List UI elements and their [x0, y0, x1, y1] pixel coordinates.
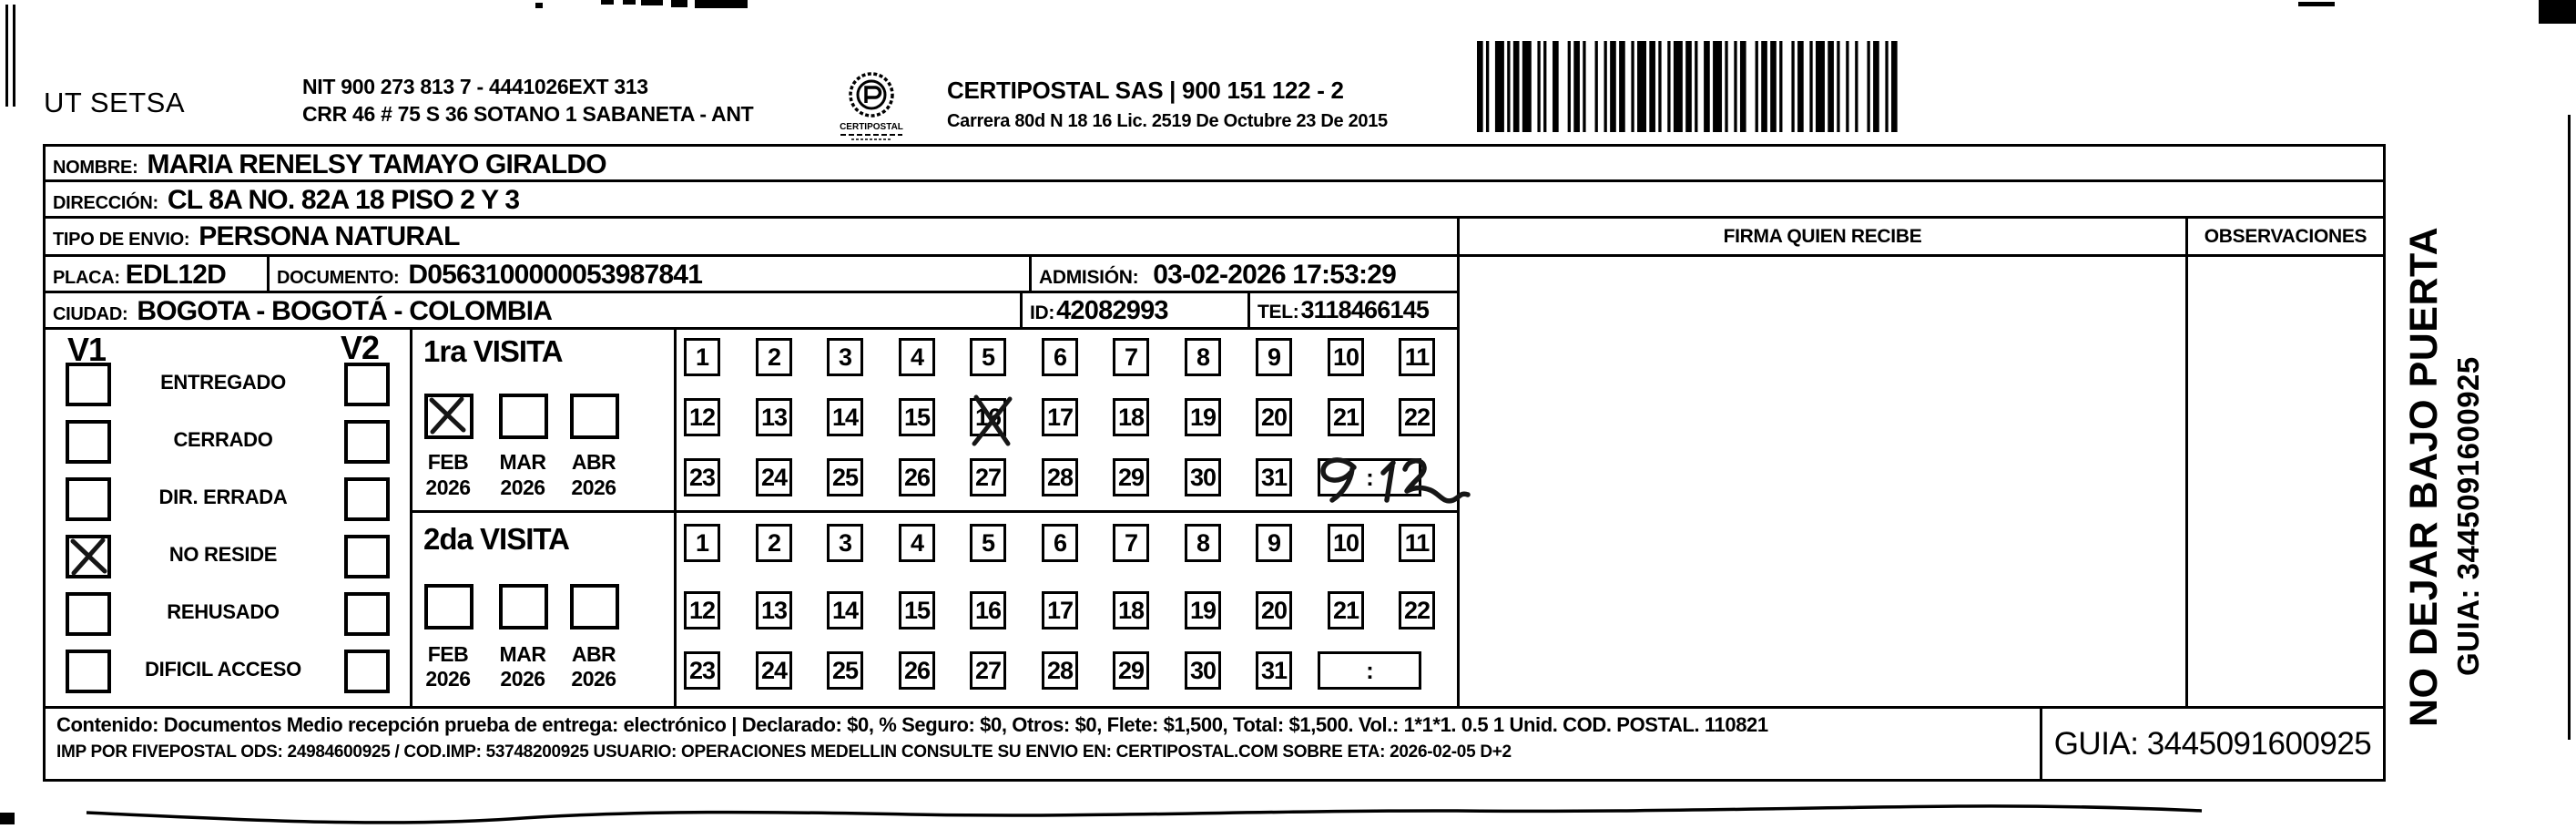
first-visit-day-24: 24 — [756, 458, 792, 496]
sender-nit: NIT 900 273 813 7 - 4441026EXT 313 — [302, 73, 753, 100]
second-visit-day-26: 26 — [899, 651, 935, 690]
second-visit-box: 2da VISITA FEB2026MAR2026ABR2026 — [410, 510, 677, 709]
scan-edge-mark — [5, 5, 8, 107]
first-visit-day-22: 22 — [1399, 398, 1435, 436]
second-visit-year-label: 2026 — [412, 667, 484, 691]
scan-top-mark — [623, 0, 636, 5]
side-note-guia: GUIA: 3445091600925 — [2448, 117, 2489, 727]
second-visit-day-17: 17 — [1042, 591, 1078, 629]
second-visit-month-label: FEB — [412, 642, 484, 667]
guia-box: GUIA: 3445091600925 — [2040, 706, 2386, 782]
footer-contenido-line: Contenido: Documentos Medio recepción pr… — [56, 713, 1768, 737]
id-cell: ID: 42082993 — [1020, 291, 1250, 330]
v1-checkbox-rehusado — [66, 592, 111, 636]
scan-bottom-wavy-line — [0, 798, 2576, 829]
tipo-envio-cell: TIPO DE ENVIO: PERSONA NATURAL — [43, 216, 1460, 257]
scan-right-edge — [2568, 115, 2571, 740]
provider-address: Carrera 80d N 18 16 Lic. 2519 De Octubre… — [947, 111, 1388, 132]
v1-checkbox-dir-errada — [66, 477, 111, 521]
status-label: DIR. ERRADA — [109, 486, 337, 509]
second-visit-time-box: : — [1318, 651, 1421, 690]
documento-label: DOCUMENTO: — [277, 268, 399, 289]
placa-cell: PLACA: EDL12D — [43, 254, 270, 293]
ciudad-label: CIUDAD: — [53, 304, 127, 325]
first-visit-day-13: 13 — [756, 398, 792, 436]
second-visit-calendar: 1234567891011121314151617181920212223242… — [674, 510, 1460, 709]
second-visit-day-6: 6 — [1042, 524, 1078, 562]
direccion-value: CL 8A NO. 82A 18 PISO 2 Y 3 — [168, 185, 519, 216]
firma-header: FIRMA QUIEN RECIBE — [1457, 216, 2188, 257]
second-visit-day-24: 24 — [756, 651, 792, 690]
ciudad-cell: CIUDAD: BOGOTA - BOGOTÁ - COLOMBIA — [43, 291, 1023, 330]
first-visit-day-15: 15 — [899, 398, 935, 436]
second-visit-year-label: 2026 — [557, 667, 630, 691]
second-visit-calendar-grid: 1234567891011121314151617181920212223242… — [677, 513, 1457, 706]
nombre-row: NOMBRE: MARIA RENELSY TAMAYO GIRALDO — [43, 144, 2386, 182]
first-visit-box: 1ra VISITA FEB2026MAR2026ABR2026 — [410, 327, 677, 513]
placa-label: PLACA: — [53, 268, 120, 289]
status-label: NO RESIDE — [109, 543, 337, 567]
tipo-envio-label: TIPO DE ENVIO: — [53, 230, 189, 251]
handwritten-time-mark — [1307, 446, 1498, 517]
first-visit-day-5: 5 — [970, 338, 1006, 376]
second-visit-day-19: 19 — [1185, 591, 1221, 629]
first-visit-day-19: 19 — [1185, 398, 1221, 436]
footer-content-cell: Contenido: Documentos Medio recepción pr… — [43, 706, 2042, 782]
first-visit-day-1: 1 — [684, 338, 720, 376]
v2-checkbox-rehusado — [344, 592, 390, 636]
second-visit-day-23: 23 — [684, 651, 720, 690]
second-visit-day-27: 27 — [970, 651, 1006, 690]
second-visit-month-label: ABR — [557, 642, 630, 667]
first-visit-day-4: 4 — [899, 338, 935, 376]
scan-top-mark — [671, 0, 687, 7]
observaciones-area — [2185, 254, 2386, 709]
first-visit-calendar-grid: 1234567891011121314151617181920212223242… — [677, 330, 1457, 510]
second-visit-month-label: MAR — [486, 642, 559, 667]
nombre-value: MARIA RENELSY TAMAYO GIRALDO — [147, 149, 606, 180]
first-visit-day-12: 12 — [684, 398, 720, 436]
first-visit-day-30: 30 — [1185, 458, 1221, 496]
first-visit-day-18: 18 — [1113, 398, 1149, 436]
tel-value: 3118466145 — [1300, 296, 1429, 324]
scan-corner-mark — [2539, 0, 2576, 24]
status-label: REHUSADO — [109, 600, 337, 624]
second-visit-day-16: 16 — [970, 591, 1006, 629]
second-visit-day-20: 20 — [1256, 591, 1292, 629]
first-visit-month-label: MAR — [486, 450, 559, 475]
first-visit-day-7: 7 — [1113, 338, 1149, 376]
second-visit-day-2: 2 — [756, 524, 792, 562]
second-visit-day-1: 1 — [684, 524, 720, 562]
side-note: NO DEJAR BAJO PUERTA GUIA: 3445091600925 — [2400, 117, 2508, 727]
first-visit-year-label: 2026 — [557, 476, 630, 500]
first-visit-day-8: 8 — [1185, 338, 1221, 376]
footer-imp-line: IMP POR FIVEPOSTAL ODS: 24984600925 / CO… — [56, 742, 1512, 762]
first-visit-day-31: 31 — [1256, 458, 1292, 496]
second-visit-day-11: 11 — [1399, 524, 1435, 562]
admision-value: 03-02-2026 17:53:29 — [1153, 260, 1396, 291]
first-visit-day-3: 3 — [827, 338, 863, 376]
v2-checkbox-cerrado — [344, 420, 390, 464]
first-visit-day-11: 11 — [1399, 338, 1435, 376]
second-visit-day-30: 30 — [1185, 651, 1221, 690]
first-visit-day-9: 9 — [1256, 338, 1292, 376]
second-visit-year-label: 2026 — [486, 667, 559, 691]
barcode — [1477, 41, 1900, 132]
scan-top-mark — [695, 0, 748, 8]
certipostal-logo-icon: CERTIPOSTAL — [833, 69, 910, 146]
second-visit-day-28: 28 — [1042, 651, 1078, 690]
documento-cell: DOCUMENTO: D0563100000053987841 — [267, 254, 1032, 293]
sender-address: CRR 46 # 75 S 36 SOTANO 1 SABANETA - ANT — [302, 100, 753, 128]
first-visit-month-label: ABR — [557, 450, 630, 475]
v2-checkbox-no-reside — [344, 535, 390, 578]
second-visit-day-4: 4 — [899, 524, 935, 562]
second-visit-day-10: 10 — [1328, 524, 1364, 562]
v1-checkbox-entregado — [66, 363, 111, 406]
second-visit-day-7: 7 — [1113, 524, 1149, 562]
side-note-warning: NO DEJAR BAJO PUERTA — [2400, 117, 2448, 727]
status-label: ENTREGADO — [109, 371, 337, 394]
scan-top-mark — [535, 3, 543, 8]
first-visit-day-25: 25 — [827, 458, 863, 496]
logo-wordmark: CERTIPOSTAL — [840, 122, 903, 132]
second-visit-day-15: 15 — [899, 591, 935, 629]
second-visit-day-18: 18 — [1113, 591, 1149, 629]
first-visit-day-14: 14 — [827, 398, 863, 436]
v2-checkbox-entregado — [344, 363, 390, 406]
id-label: ID: — [1030, 302, 1054, 324]
second-visit-day-8: 8 — [1185, 524, 1221, 562]
second-visit-area: 2da VISITA FEB2026MAR2026ABR2026 — [412, 513, 674, 706]
second-visit-day-22: 22 — [1399, 591, 1435, 629]
first-visit-day-21: 21 — [1328, 398, 1364, 436]
second-visit-day-25: 25 — [827, 651, 863, 690]
second-visit-day-13: 13 — [756, 591, 792, 629]
first-visit-day-26: 26 — [899, 458, 935, 496]
sender-company: UT SETSA — [44, 87, 185, 119]
placa-value: EDL12D — [126, 260, 226, 291]
id-value: 42082993 — [1056, 296, 1168, 326]
second-visit-month-checkbox-abr — [570, 584, 619, 629]
first-visit-calendar: 1234567891011121314151617181920212223242… — [674, 327, 1460, 513]
direccion-row: DIRECCIÓN: CL 8A NO. 82A 18 PISO 2 Y 3 — [43, 179, 2386, 219]
scan-top-mark — [601, 0, 614, 5]
documento-value: D0563100000053987841 — [408, 260, 702, 291]
v2-column-label: V2 — [341, 329, 379, 367]
v1-checkbox-cerrado — [66, 420, 111, 464]
first-visit-area: 1ra VISITA FEB2026MAR2026ABR2026 — [412, 330, 674, 510]
admision-label: ADMISIÓN: — [1039, 267, 1138, 289]
tipo-envio-value: PERSONA NATURAL — [199, 221, 459, 252]
second-visit-day-14: 14 — [827, 591, 863, 629]
second-visit-day-12: 12 — [684, 591, 720, 629]
firma-area — [1457, 254, 2188, 709]
v1-checkbox-no-reside — [66, 535, 111, 578]
first-visit-year-label: 2026 — [486, 476, 559, 500]
shipping-waybill-scan: UT SETSA NIT 900 273 813 7 - 4441026EXT … — [0, 0, 2576, 829]
second-visit-day-5: 5 — [970, 524, 1006, 562]
second-visit-day-21: 21 — [1328, 591, 1364, 629]
admision-cell: ADMISIÓN: 03-02-2026 17:53:29 — [1029, 254, 1460, 293]
first-visit-day-17: 17 — [1042, 398, 1078, 436]
sender-nit-address: NIT 900 273 813 7 - 4441026EXT 313 CRR 4… — [302, 73, 753, 128]
ciudad-value: BOGOTA - BOGOTÁ - COLOMBIA — [137, 296, 552, 327]
first-visit-day-10: 10 — [1328, 338, 1364, 376]
tel-cell: TEL: 3118466145 — [1247, 291, 1460, 330]
first-visit-day-29: 29 — [1113, 458, 1149, 496]
observaciones-header: OBSERVACIONES — [2185, 216, 2386, 257]
second-visit-day-3: 3 — [827, 524, 863, 562]
direccion-label: DIRECCIÓN: — [53, 193, 158, 214]
first-visit-day-28: 28 — [1042, 458, 1078, 496]
first-visit-day-23: 23 — [684, 458, 720, 496]
second-visit-day-9: 9 — [1256, 524, 1292, 562]
provider-block: CERTIPOSTAL SAS | 900 151 122 - 2 Carrer… — [947, 77, 1388, 132]
first-visit-month-checkbox-mar — [499, 394, 548, 439]
status-label: CERRADO — [109, 428, 337, 452]
first-visit-day-27: 27 — [970, 458, 1006, 496]
tel-label: TEL: — [1257, 302, 1298, 323]
status-area: V1 V2 ENTREGADOCERRADODIR. ERRADANO RESI… — [46, 330, 410, 706]
first-visit-day-2: 2 — [756, 338, 792, 376]
v1-checkbox-dificil-acceso — [66, 650, 111, 693]
first-visit-day-6: 6 — [1042, 338, 1078, 376]
first-visit-month-checkbox-feb — [424, 394, 473, 439]
first-visit-year-label: 2026 — [412, 476, 484, 500]
second-visit-day-29: 29 — [1113, 651, 1149, 690]
second-visit-title: 2da VISITA — [423, 522, 569, 557]
nombre-label: NOMBRE: — [53, 158, 137, 179]
status-box: V1 V2 ENTREGADOCERRADODIR. ERRADANO RESI… — [43, 327, 412, 709]
first-visit-title: 1ra VISITA — [423, 334, 563, 369]
scan-top-mark — [2298, 2, 2335, 6]
second-visit-day-31: 31 — [1256, 651, 1292, 690]
provider-name: CERTIPOSTAL SAS | 900 151 122 - 2 — [947, 77, 1388, 105]
scan-top-mark — [641, 0, 663, 5]
first-visit-day-20: 20 — [1256, 398, 1292, 436]
scan-edge-mark — [13, 5, 15, 107]
status-label: DIFICIL ACCESO — [109, 658, 337, 681]
first-visit-month-label: FEB — [412, 450, 484, 475]
second-visit-month-checkbox-mar — [499, 584, 548, 629]
first-visit-day-16: 16 — [970, 398, 1006, 436]
second-visit-month-checkbox-feb — [424, 584, 473, 629]
v2-checkbox-dificil-acceso — [344, 650, 390, 693]
v2-checkbox-dir-errada — [344, 477, 390, 521]
first-visit-month-checkbox-abr — [570, 394, 619, 439]
